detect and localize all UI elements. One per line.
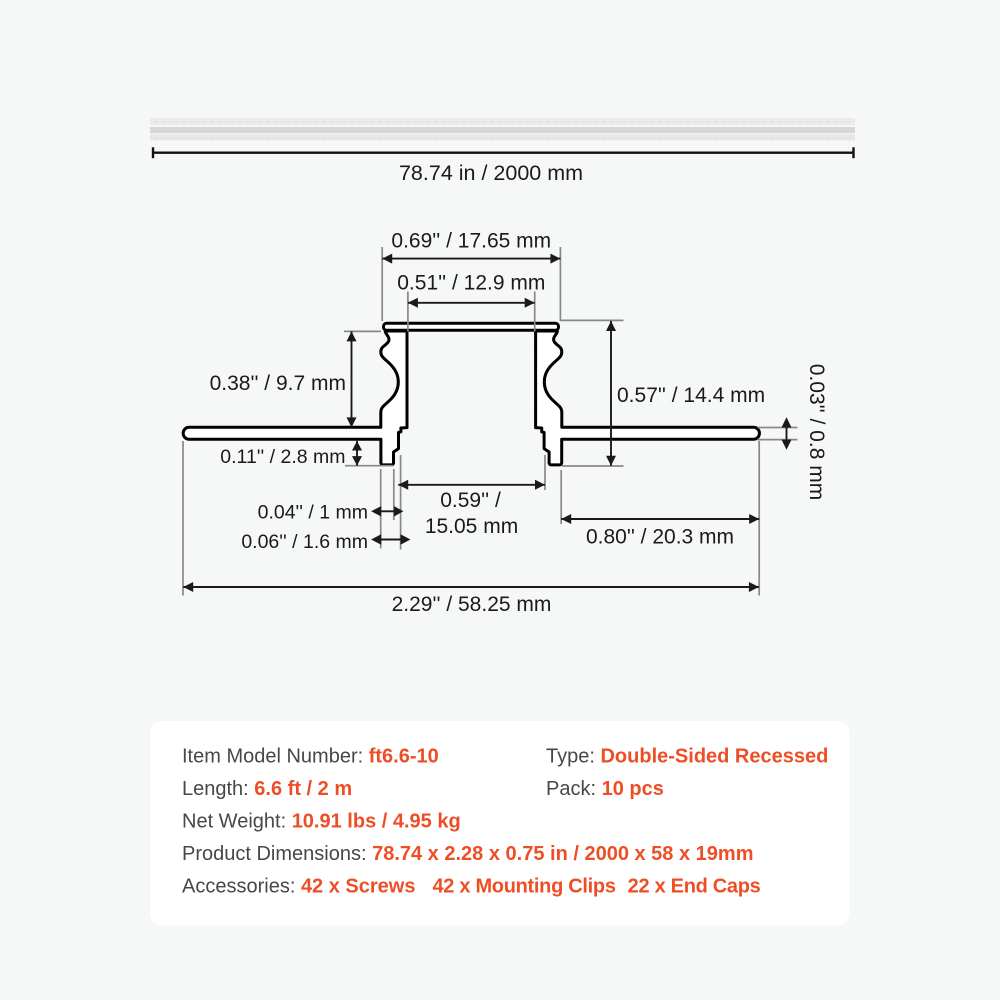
svg-text:Item Model Number: ft6.6-10: Item Model Number: ft6.6-10 <box>182 746 439 768</box>
svg-text:0.57'' / 14.4 mm: 0.57'' / 14.4 mm <box>617 384 765 407</box>
svg-text:15.05 mm: 15.05 mm <box>425 515 518 538</box>
svg-text:78.74 in / 2000 mm: 78.74 in / 2000 mm <box>399 161 583 185</box>
svg-text:0.38'' / 9.7 mm: 0.38'' / 9.7 mm <box>210 372 346 395</box>
svg-text:0.04'' / 1 mm: 0.04'' / 1 mm <box>258 502 368 524</box>
svg-text:Product Dimensions: 78.74 x 2.: Product Dimensions: 78.74 x 2.28 x 0.75 … <box>182 843 753 865</box>
svg-text:Pack: 10 pcs: Pack: 10 pcs <box>546 778 664 800</box>
svg-text:0.03'' / 0.8 mm: 0.03'' / 0.8 mm <box>805 364 828 500</box>
svg-text:Length: 6.6 ft / 2 m: Length: 6.6 ft / 2 m <box>182 778 352 800</box>
svg-text:0.80'' / 20.3 mm: 0.80'' / 20.3 mm <box>586 526 734 549</box>
svg-text:0.06'' / 1.6 mm: 0.06'' / 1.6 mm <box>241 531 368 553</box>
svg-text:0.11'' / 2.8 mm: 0.11'' / 2.8 mm <box>220 446 345 468</box>
svg-text:0.69'' / 17.65 mm: 0.69'' / 17.65 mm <box>391 230 551 253</box>
svg-text:0.51'' / 12.9 mm: 0.51'' / 12.9 mm <box>397 272 545 295</box>
svg-text:0.59'' /: 0.59'' / <box>440 489 501 512</box>
svg-text:Accessories: 42 x Screws42 x M: Accessories: 42 x Screws42 x Mounting Cl… <box>182 876 761 898</box>
svg-text:Net Weight: 10.91 lbs / 4.95 k: Net Weight: 10.91 lbs / 4.95 kg <box>182 811 461 833</box>
svg-text:2.29'' / 58.25 mm: 2.29'' / 58.25 mm <box>392 593 552 616</box>
svg-text:Type: Double-Sided Recessed: Type: Double-Sided Recessed <box>546 746 828 768</box>
